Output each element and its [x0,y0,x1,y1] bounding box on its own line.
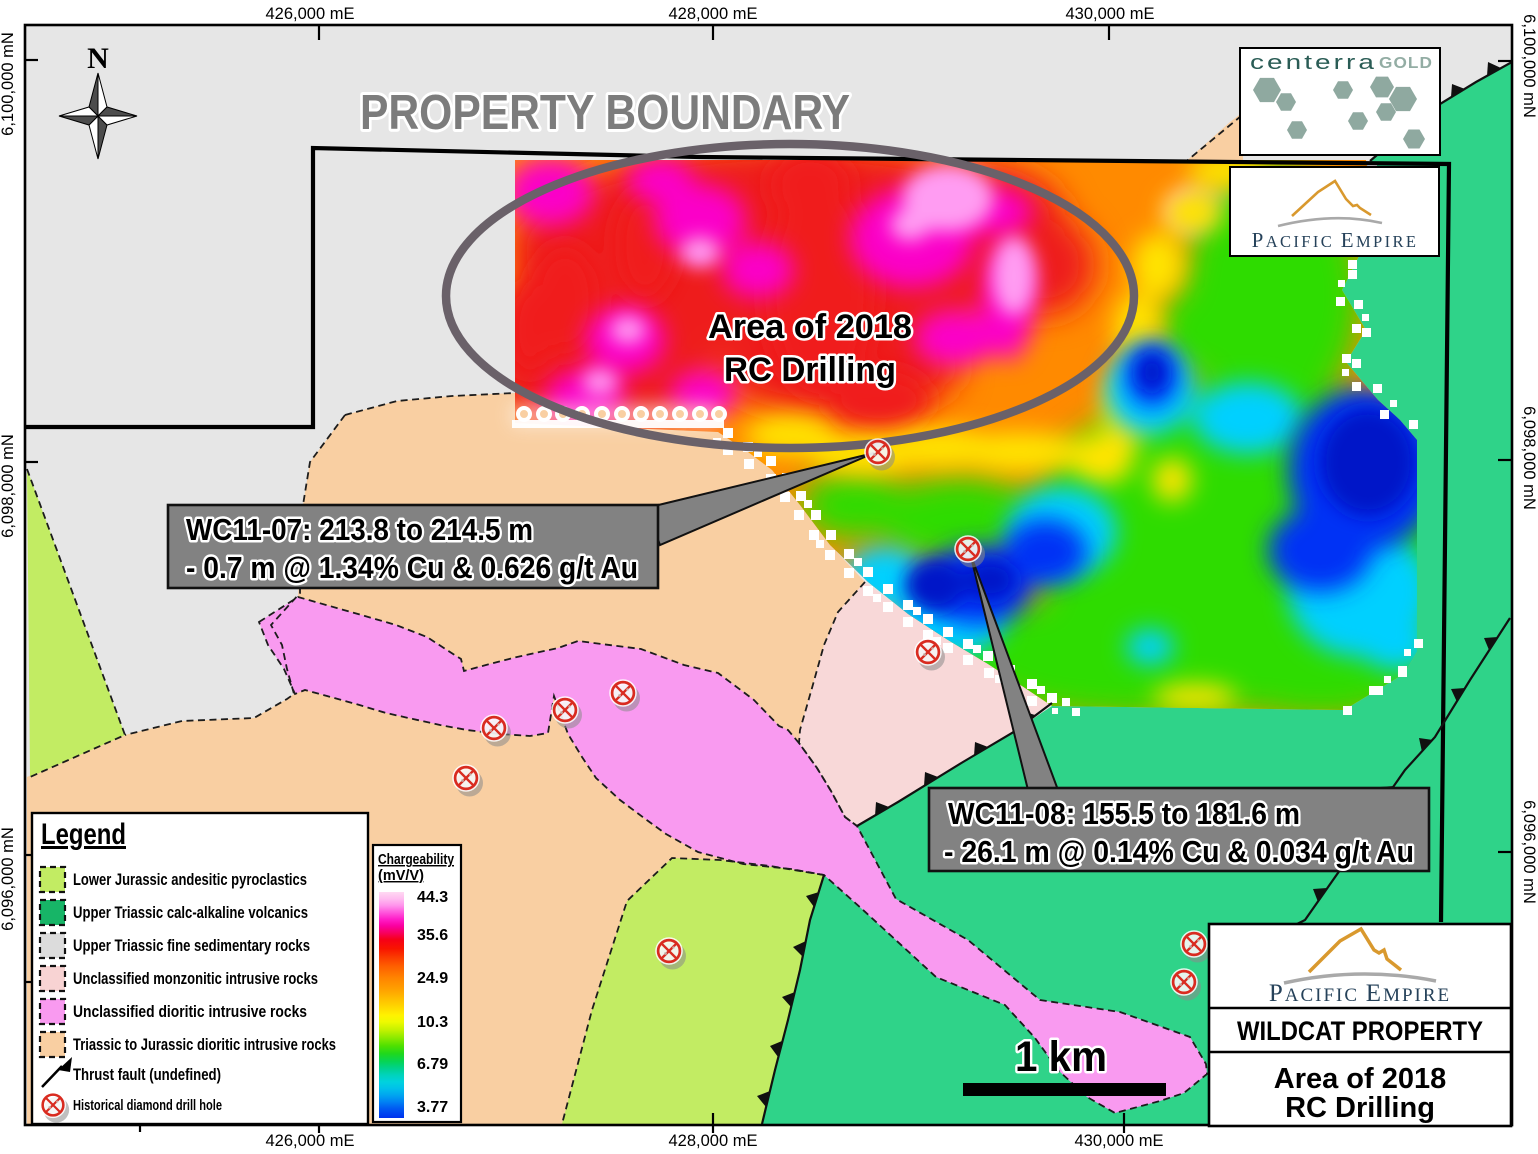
svg-text:6,096,000 mN: 6,096,000 mN [0,827,17,931]
svg-text:6,100,000 mN: 6,100,000 mN [0,32,17,136]
svg-text:Area of 2018: Area of 2018 [1274,1063,1447,1095]
svg-text:428,000 mE: 428,000 mE [669,1132,758,1150]
svg-text:24.9: 24.9 [417,970,448,987]
svg-text:PROPERTY BOUNDARY: PROPERTY BOUNDARY [360,86,850,140]
svg-text:44.3: 44.3 [417,889,448,906]
svg-text:426,000 mE: 426,000 mE [266,1132,355,1150]
svg-text:1 km: 1 km [1015,1033,1107,1081]
svg-text:PACIFIC EMPIRE: PACIFIC EMPIRE [1269,980,1451,1007]
svg-text:430,000 mE: 430,000 mE [1075,1132,1164,1150]
svg-text:WC11-08: 155.5 to 181.6 m: WC11-08: 155.5 to 181.6 m [948,796,1300,831]
svg-text:- 26.1 m @ 0.14% Cu & 0.034 g/: - 26.1 m @ 0.14% Cu & 0.034 g/t Au [944,834,1414,869]
svg-text:PACIFIC EMPIRE: PACIFIC EMPIRE [1252,228,1419,252]
svg-text:Lower Jurassic andesitic pyroc: Lower Jurassic andesitic pyroclastics [73,870,307,889]
svg-text:WILDCAT PROPERTY: WILDCAT PROPERTY [1237,1016,1483,1046]
svg-text:6,098,000 mN: 6,098,000 mN [0,434,17,538]
svg-text:Historical diamond drill hole: Historical diamond drill hole [73,1098,222,1114]
svg-text:Unclassified dioritic intrusiv: Unclassified dioritic intrusive rocks [73,1002,307,1021]
svg-text:- 0.7 m @ 1.34% Cu & 0.626 g/t: - 0.7 m @ 1.34% Cu & 0.626 g/t Au [186,550,638,585]
svg-text:6,096,000 mN: 6,096,000 mN [1520,800,1538,904]
svg-text:35.6: 35.6 [417,927,448,944]
svg-text:Area of 2018: Area of 2018 [708,308,912,346]
svg-text:N: N [87,42,109,75]
svg-text:426,000 mE: 426,000 mE [266,5,355,23]
svg-text:Triassic to Jurassic dioritic: Triassic to Jurassic dioritic intrusive … [73,1035,336,1054]
svg-text:Thrust fault (undefined): Thrust fault (undefined) [73,1065,221,1084]
svg-text:3.77: 3.77 [417,1099,448,1116]
svg-text:Chargeability: Chargeability [378,852,454,868]
svg-text:428,000 mE: 428,000 mE [669,5,758,23]
svg-text:(mV/V): (mV/V) [378,868,424,884]
svg-text:WC11-07: 213.8 to 214.5 m: WC11-07: 213.8 to 214.5 m [186,512,533,547]
svg-text:Upper Triassic fine sedimentar: Upper Triassic fine sedimentary rocks [73,936,310,955]
svg-text:6,100,000 mN: 6,100,000 mN [1520,14,1538,118]
svg-text:RC Drilling: RC Drilling [724,351,896,389]
svg-text:GOLD: GOLD [1379,55,1433,72]
svg-text:Unclassified monzonitic intrus: Unclassified monzonitic intrusive rocks [73,969,318,988]
svg-text:430,000 mE: 430,000 mE [1066,5,1155,23]
svg-text:6.79: 6.79 [417,1056,448,1073]
svg-text:Upper Triassic calc-alkaline v: Upper Triassic calc-alkaline volcanics [73,903,308,922]
svg-text:6,098,000 mN: 6,098,000 mN [1520,406,1538,510]
svg-text:RC Drilling: RC Drilling [1285,1092,1435,1124]
svg-text:10.3: 10.3 [417,1014,448,1031]
svg-text:centerra: centerra [1250,52,1377,74]
svg-text:Legend: Legend [41,818,126,851]
